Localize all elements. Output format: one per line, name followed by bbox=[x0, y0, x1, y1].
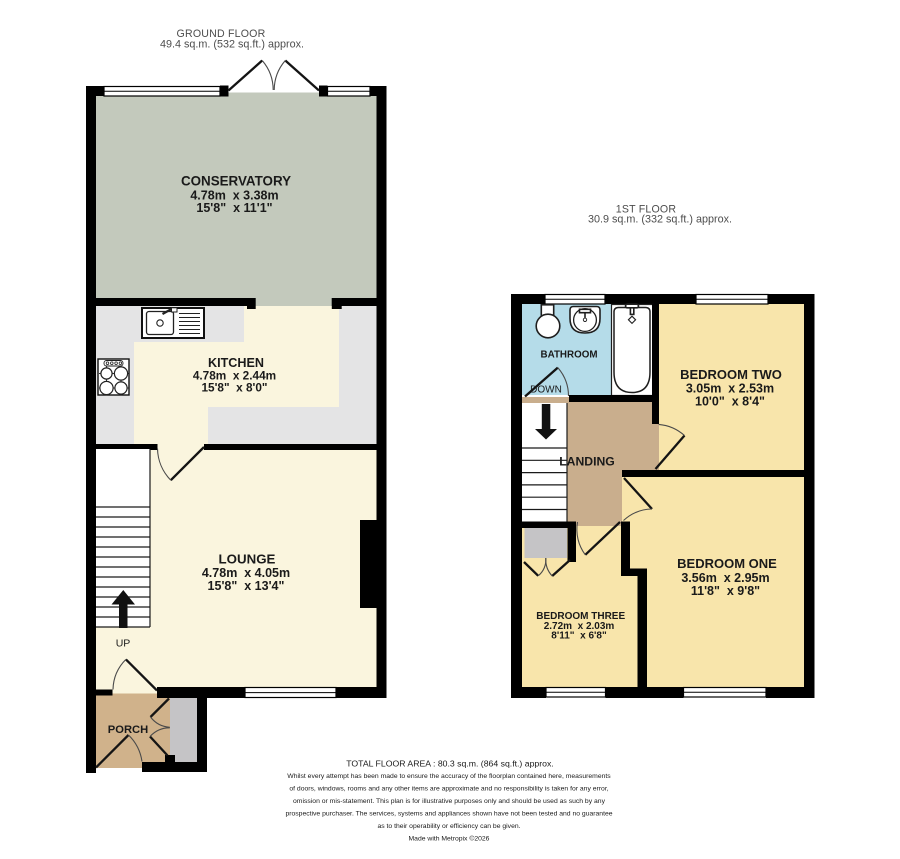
svg-text:10'0" x 8'4": 10'0" x 8'4" bbox=[695, 394, 765, 408]
svg-text:of doors, windows, rooms and a: of doors, windows, rooms and any other i… bbox=[289, 786, 608, 793]
svg-text:omission or mis-statement. Thi: omission or mis-statement. This plan is … bbox=[293, 798, 606, 805]
svg-text:3.56m x 2.95m: 3.56m x 2.95m bbox=[681, 571, 769, 585]
svg-text:11'8" x 9'8": 11'8" x 9'8" bbox=[691, 584, 760, 598]
svg-text:CONSERVATORY: CONSERVATORY bbox=[181, 174, 291, 189]
svg-text:15'8" x 13'4": 15'8" x 13'4" bbox=[208, 579, 285, 593]
svg-text:BEDROOM ONE: BEDROOM ONE bbox=[677, 556, 777, 571]
svg-text:UP: UP bbox=[116, 638, 131, 650]
svg-text:DOWN: DOWN bbox=[530, 385, 562, 396]
svg-text:LOUNGE: LOUNGE bbox=[219, 552, 276, 567]
svg-text:TOTAL FLOOR AREA : 80.3 sq.m.: TOTAL FLOOR AREA : 80.3 sq.m. (864 sq.ft… bbox=[346, 759, 553, 769]
svg-text:Made with Metropix ©2026: Made with Metropix ©2026 bbox=[409, 835, 490, 843]
svg-text:15'8" x 11'1": 15'8" x 11'1" bbox=[196, 201, 272, 215]
svg-text:PORCH: PORCH bbox=[108, 724, 148, 736]
svg-text:BEDROOM TWO: BEDROOM TWO bbox=[680, 367, 782, 382]
svg-text:49.4 sq.m. (532 sq.ft.) approx: 49.4 sq.m. (532 sq.ft.) approx. bbox=[160, 39, 304, 51]
svg-text:Whilst every attempt has been: Whilst every attempt has been made to en… bbox=[287, 773, 611, 780]
svg-text:8'11" x 6'8": 8'11" x 6'8" bbox=[551, 630, 607, 641]
svg-text:prospective purchaser. The ser: prospective purchaser. The services, sys… bbox=[285, 811, 612, 818]
svg-text:BATHROOM: BATHROOM bbox=[541, 350, 598, 361]
svg-text:15'8" x 8'0": 15'8" x 8'0" bbox=[202, 380, 268, 394]
svg-text:30.9 sq.m. (332 sq.ft.) approx: 30.9 sq.m. (332 sq.ft.) approx. bbox=[588, 214, 732, 226]
svg-text:as to their operability or eff: as to their operability or efficiency ca… bbox=[377, 823, 520, 830]
svg-text:LANDING: LANDING bbox=[559, 455, 615, 469]
